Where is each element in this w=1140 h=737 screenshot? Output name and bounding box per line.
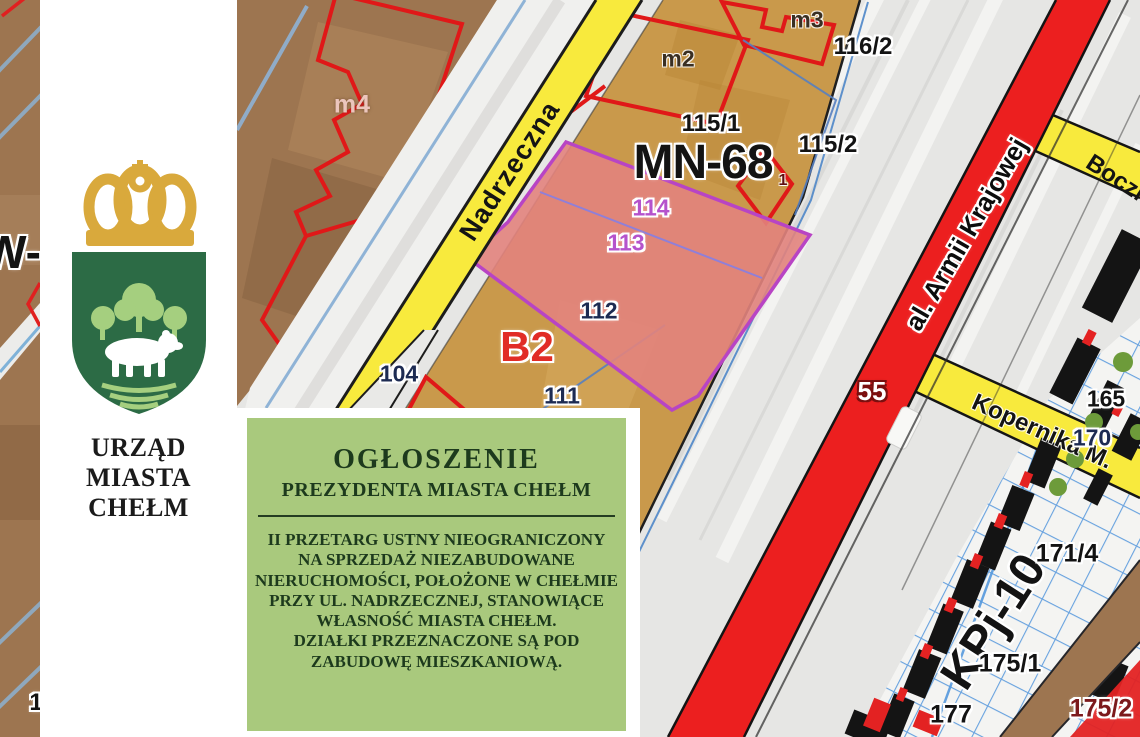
zone-label-b2: B2 — [500, 326, 554, 368]
parcel-label-177: 177 — [930, 703, 972, 728]
parcel-label-112: 112 — [580, 300, 617, 323]
parcel-label-175-2: 175/2 — [1070, 697, 1133, 722]
parcel-label-115-2: 115/2 — [799, 133, 858, 157]
crown-icon — [70, 160, 210, 256]
parcel-label-114: 114 — [632, 197, 669, 220]
parcel-label-165: 165 — [1087, 388, 1125, 411]
announcement-body-line: PRZY UL. NADRZECZNEJ, STANOWIĄCE — [247, 591, 626, 611]
parcel-label-55: 55 — [858, 378, 887, 404]
parcel-label-111: 111 — [544, 385, 580, 408]
parcel-label-170: 170 — [1073, 427, 1111, 450]
organization-name-line1: URZĄD MIASTA — [40, 433, 237, 493]
zone-label-w: W- — [0, 229, 41, 275]
parcel-label-116-2: 116/2 — [834, 35, 893, 59]
organization-name: URZĄD MIASTA CHEŁM — [40, 433, 237, 523]
organization-name-line2: CHEŁM — [40, 493, 237, 523]
parcel-label-115-1: 115/1 — [682, 112, 741, 136]
building-label-m2: m2 — [661, 48, 694, 71]
building-label-m3: m3 — [790, 9, 823, 32]
announcement-divider — [258, 515, 614, 517]
shield-icon — [72, 252, 206, 414]
announcement-body-line: ZABUDOWĘ MIESZKANIOWĄ. — [247, 652, 626, 672]
announcement-box: OGŁOSZENIE PREZYDENTA MIASTA CHEŁM II PR… — [247, 418, 626, 731]
zone-label-mn68: MN-68 — [633, 139, 772, 187]
announcement-subtitle: PREZYDENTA MIASTA CHEŁM — [247, 479, 626, 502]
announcement-title: OGŁOSZENIE — [247, 444, 626, 476]
parcel-label-113: 113 — [607, 232, 644, 255]
building-label-m4: m4 — [334, 93, 370, 118]
parcel-label-1: 1 — [779, 173, 788, 189]
screenshot-root: W- m4 m2 m3 116/2 115/1 115/2 MN-68 1 11… — [0, 0, 1140, 737]
city-coat-of-arms-icon — [40, 160, 237, 430]
announcement-body-line: DZIAŁKI PRZEZNACZONE SĄ POD — [247, 631, 626, 651]
announcement-body: II PRZETARG USTNY NIEOGRANICZONY NA SPRZ… — [247, 530, 626, 672]
announcement-body-line: WŁASNOŚĆ MIASTA CHEŁM. — [247, 611, 626, 631]
announcement-frame: OGŁOSZENIE PREZYDENTA MIASTA CHEŁM II PR… — [237, 408, 640, 737]
parcel-label-171-4: 171/4 — [1036, 542, 1099, 567]
flyer-panel: URZĄD MIASTA CHEŁM — [40, 0, 237, 737]
announcement-body-line: II PRZETARG USTNY NIEOGRANICZONY — [247, 530, 626, 550]
parcel-label-104: 104 — [380, 363, 418, 386]
announcement-body-line: NA SPRZEDAŻ NIEZABUDOWANE — [247, 550, 626, 570]
parcel-label-175-1: 175/1 — [979, 652, 1042, 677]
announcement-body-line: NIERUCHOMOŚCI, POŁOŻONE W CHEŁMIE — [247, 571, 626, 591]
